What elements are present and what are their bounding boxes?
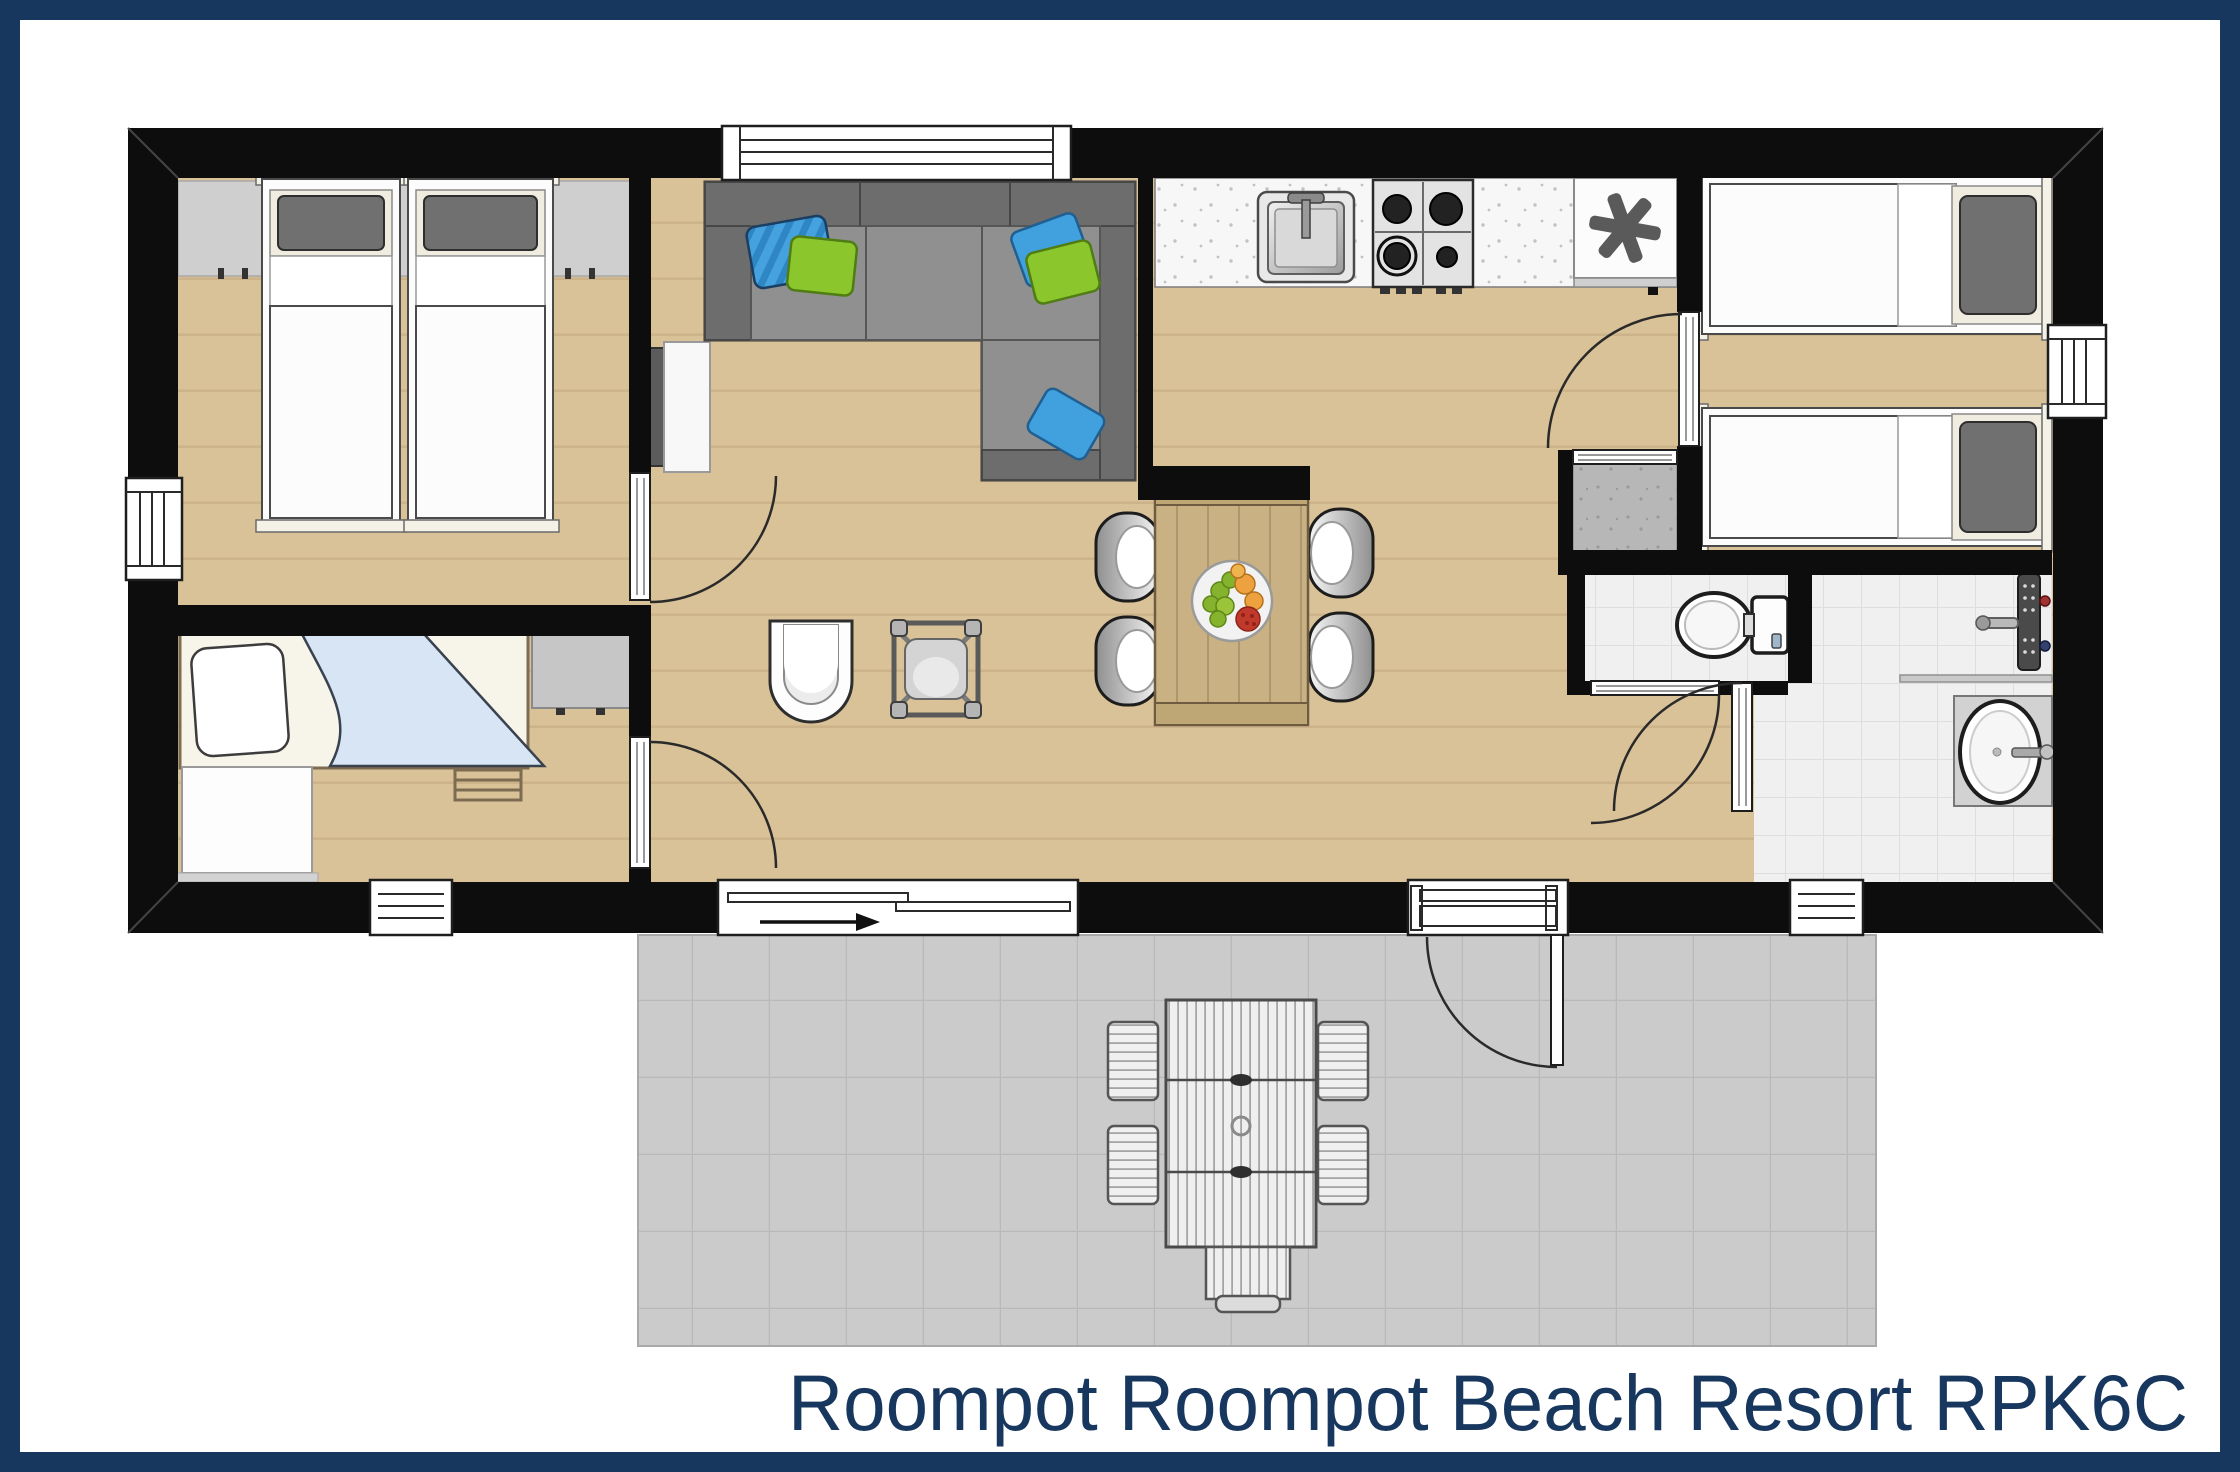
terrace-table — [1166, 1000, 1316, 1247]
window-living-top — [722, 126, 1071, 180]
table-latch — [1230, 1074, 1252, 1086]
single-bed-1 — [256, 173, 406, 532]
wardrobe — [182, 767, 312, 873]
house — [126, 126, 2106, 1067]
dining-chair — [1096, 617, 1160, 705]
terrace-bench-right-2 — [1318, 1126, 1368, 1204]
headboard-shelf — [178, 181, 631, 276]
single-bed-4 — [1698, 404, 2052, 552]
plan-title: Roompot Roompot Beach Resort RPK6C — [788, 1358, 2188, 1447]
bed-pillow — [190, 643, 289, 757]
single-bed-2 — [404, 173, 559, 532]
shower-glass — [1900, 675, 2052, 682]
window-small-bedroom — [370, 880, 452, 935]
hot-knob — [2040, 596, 2050, 606]
terrace-door-leaf — [1551, 935, 1563, 1065]
floorplan-canvas: Roompot Roompot Beach Resort RPK6C — [0, 0, 2240, 1472]
terrace — [638, 935, 1876, 1346]
dining-chair — [1309, 509, 1373, 597]
table-latch — [1230, 1166, 1252, 1178]
terrace-chair-foot-back — [1216, 1296, 1280, 1312]
single-bed-3 — [1698, 172, 2052, 340]
terrace-bench-right-1 — [1318, 1022, 1368, 1100]
dining-chair — [1309, 613, 1373, 701]
kitchen-sink — [1258, 192, 1354, 282]
floorplan-page: Roompot Roompot Beach Resort RPK6C — [0, 0, 2240, 1472]
window-master-left — [126, 478, 182, 580]
gas-stove — [1373, 180, 1473, 294]
toilet — [1677, 593, 1788, 657]
washbasin — [1954, 696, 2054, 806]
tub-chair — [770, 621, 852, 722]
fruit-bowl — [1192, 561, 1272, 641]
window-bathroom — [1790, 880, 1863, 935]
wardrobe-sill — [176, 873, 318, 882]
terrace-bench-left-1 — [1108, 1022, 1158, 1100]
terrace-bench-left-2 — [1108, 1126, 1158, 1204]
dining-chair — [1096, 513, 1160, 601]
faucet-stem — [1302, 200, 1310, 238]
sofa-pillow-green — [786, 236, 857, 297]
sliding-entrance-door — [718, 880, 1078, 935]
tv-panel — [664, 342, 710, 472]
wc — [1677, 593, 1788, 657]
window-bedroom-right — [2048, 325, 2106, 418]
terrace-chair-foot — [1206, 1247, 1290, 1299]
freezer-unit — [1574, 178, 1677, 295]
cold-knob — [2040, 641, 2050, 651]
kitchen — [1155, 178, 1677, 295]
storage-hatch — [1573, 450, 1677, 464]
storage-floor — [1573, 464, 1677, 558]
